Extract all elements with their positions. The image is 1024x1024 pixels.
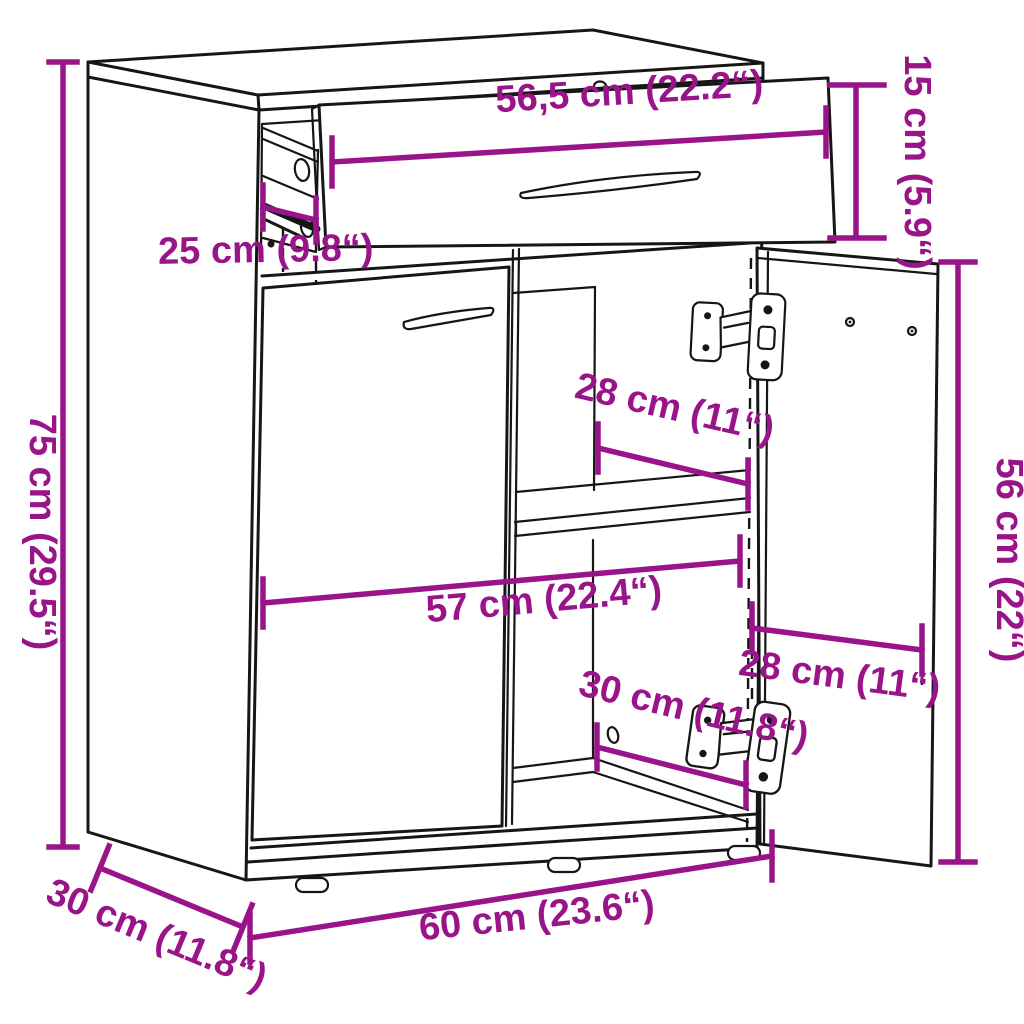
label-shelf-depth: 28 cm (11“)	[571, 365, 778, 452]
dim-door-height: 56 cm (22“)	[941, 262, 1024, 862]
product-dimension-image: 56,5 cm (22.2“) 15 cm (5.9“) 25 cm (9.8“…	[0, 0, 1024, 1024]
left-door	[252, 267, 509, 840]
dim-overall-depth: 30 cm (11.8“)	[40, 846, 273, 999]
foot-middle	[548, 858, 580, 872]
label-door-height: 56 cm (22“)	[988, 458, 1024, 663]
dim-shelf-depth: 28 cm (11“)	[571, 365, 778, 508]
label-drawer-rail-depth: 25 cm (9.8“)	[158, 227, 374, 273]
label-overall-height: 75 cm (29.5“)	[21, 414, 63, 651]
hinge-top	[689, 290, 785, 381]
cabinet-dimension-diagram: 56,5 cm (22.2“) 15 cm (5.9“) 25 cm (9.8“…	[0, 0, 1024, 1024]
dim-overall-height: 75 cm (29.5“)	[21, 62, 77, 847]
label-drawer-front-height: 15 cm (5.9“)	[896, 54, 938, 269]
dim-drawer-front-height: 15 cm (5.9“)	[830, 54, 938, 269]
cabinet-line-art	[88, 30, 938, 892]
left-side-panel	[88, 62, 259, 880]
foot-left	[296, 878, 328, 892]
